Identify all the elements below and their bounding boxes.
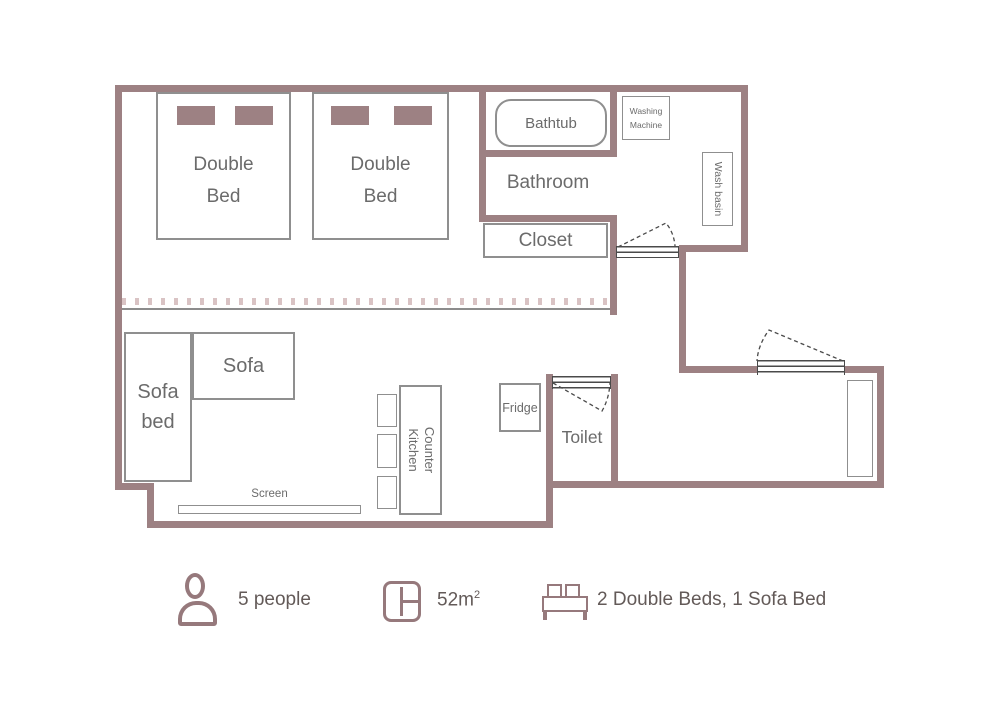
entry-bench [847,380,873,477]
closet: Closet [483,223,608,258]
wash-basin: Wash basin [702,152,733,226]
wall-outer-right [877,366,884,488]
double-bed-2: Double Bed [312,92,449,240]
entry-door-threshold [757,360,845,375]
utility-door-threshold [616,246,679,258]
floorplan-icon-hline [403,600,418,603]
wall-toilet-right [611,374,618,481]
counter-kitchen: Counter Kitchen [399,385,442,515]
bed-icon-leg-right [583,611,587,620]
person-icon-body [178,601,217,626]
sofa: Sofa [192,332,295,400]
sofa-label: Sofa [223,355,264,378]
wall-bathroom-right-upper [610,85,617,157]
double-bed-2-label: Double Bed [314,149,447,213]
legend-area-sup: 2 [474,589,480,601]
washing-machine: Washing Machine [622,96,670,140]
pillow-icon [331,106,369,125]
bathroom-label: Bathroom [486,172,610,194]
partition-track-line [122,308,610,310]
wall-utility-bottom [679,245,748,252]
washing-machine-label: Washing Machine [630,104,663,132]
legend-capacity: 5 people [238,589,311,611]
double-bed-1: Double Bed [156,92,291,240]
bed-icon [542,584,588,625]
legend-area: 52m2 [437,589,480,611]
counter-kitchen-label: Counter Kitchen [405,385,437,515]
wall-left [115,85,122,490]
kitchen-stool [377,394,397,427]
wall-living-bottom [147,521,553,528]
toilet-label: Toilet [553,427,611,448]
sofa-bed-label: Sofa bed [137,377,178,437]
floor-plan: Double Bed Double Bed Bathtub Bathroom C… [0,0,1000,707]
wall-bathroom-bottom [479,215,617,222]
floorplan-icon [383,581,421,622]
wall-entry-right [845,366,884,373]
bathtub: Bathtub [495,99,607,147]
bathtub-label: Bathtub [525,115,577,132]
double-bed-1-label: Double Bed [158,149,289,213]
person-icon [185,573,205,599]
wall-utility-right [741,85,748,252]
bed-icon-mattress [542,596,588,612]
wall-vestibule-right [679,245,686,373]
utility-door-swing [618,223,675,247]
screen-label: Screen [178,488,361,500]
wash-basin-label: Wash basin [712,152,724,226]
pillow-icon [394,106,432,125]
pillow-icon [235,106,273,125]
wall-bathtub-divider [479,150,617,157]
pillow-icon [177,106,215,125]
kitchen-stool [377,476,397,509]
entry-door-swing [757,330,843,361]
bed-icon-leg-left [543,611,547,620]
fridge: Fridge [499,383,541,432]
toilet-door-threshold [552,376,611,389]
wall-corridor-bottom [546,481,884,488]
screen-panel [178,505,361,514]
wall-entry-left [679,366,757,373]
wall-closet-right [610,215,617,315]
legend-beds: 2 Double Beds, 1 Sofa Bed [597,589,826,611]
wall-toilet-left [546,374,553,528]
sofa-bed: Sofa bed [124,332,192,482]
partition-screen-symbol [122,298,610,305]
closet-label: Closet [519,230,573,252]
fridge-label: Fridge [502,401,537,415]
wall-top [115,85,748,92]
kitchen-stool [377,434,397,468]
